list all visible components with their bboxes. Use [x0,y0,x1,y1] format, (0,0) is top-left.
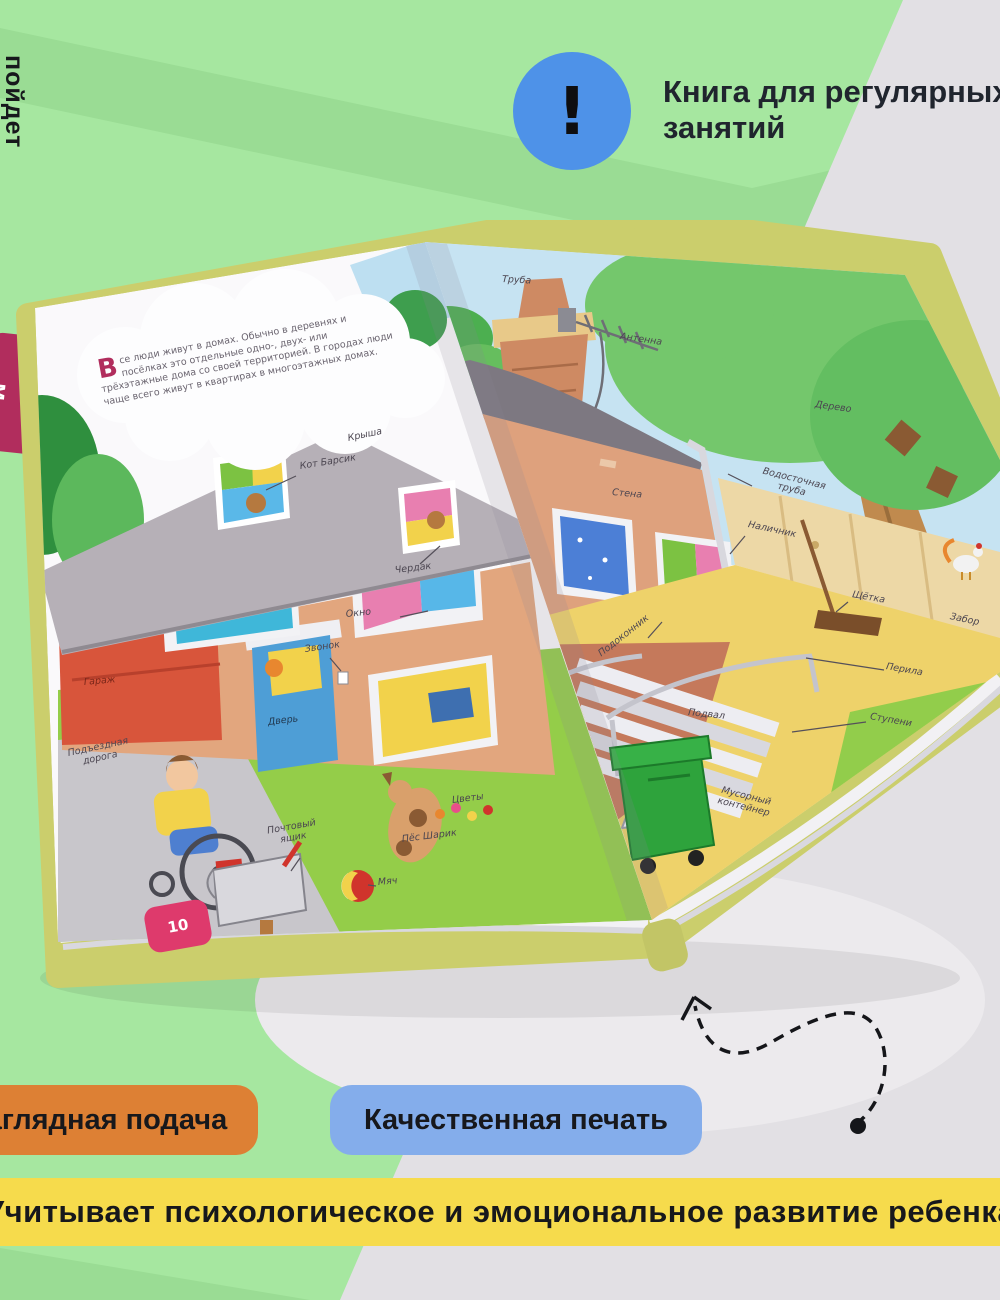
pill-blue: Качественная печать [330,1085,702,1155]
label-chimney: Труба [502,275,532,287]
pill-blue-label: Качественная печать [364,1104,668,1137]
exclamation-icon: ! [557,73,587,150]
label-ball: Мяч [378,876,398,888]
skylight-2 [398,480,460,554]
banner-text: Учитывает психологическое и эмоционально… [0,1194,1000,1230]
book-illustration [0,220,1000,1010]
book: м [0,220,1000,1010]
banner: Учитывает психологическое и эмоционально… [0,1178,1000,1246]
pill-orange-label: Наглядная подача [0,1104,227,1137]
note-line1: Книга для регулярных [663,74,1000,110]
ball [341,870,374,902]
pill-orange: Наглядная подача [0,1085,258,1155]
side-vertical-text: пойдет [0,55,28,148]
intro-dropcap: В [96,356,120,381]
note-circle: ! [513,52,631,170]
window-sparkle [552,508,637,604]
page-number: 10 [166,915,190,936]
note-text: Книга для регулярных занятий [663,74,1000,146]
promo-image: { "note": {"icon": "!", "line1": "Книга … [0,0,1000,1300]
note-line2: занятий [663,110,1000,146]
